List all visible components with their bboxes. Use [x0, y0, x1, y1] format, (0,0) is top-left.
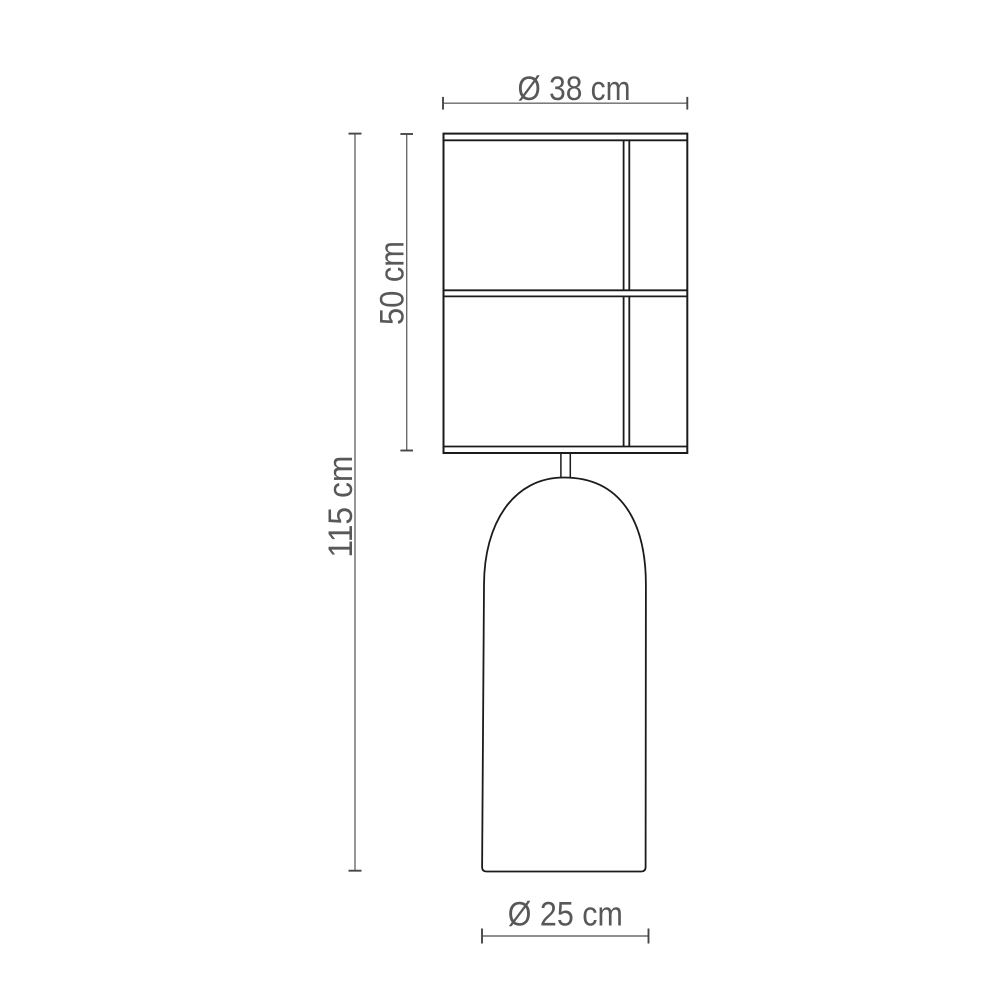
- svg-text:50 cm: 50 cm: [374, 241, 412, 325]
- svg-text:115 cm: 115 cm: [322, 456, 360, 558]
- svg-text:Ø 38 cm: Ø 38 cm: [518, 70, 631, 108]
- svg-text:Ø 25 cm: Ø 25 cm: [508, 896, 623, 934]
